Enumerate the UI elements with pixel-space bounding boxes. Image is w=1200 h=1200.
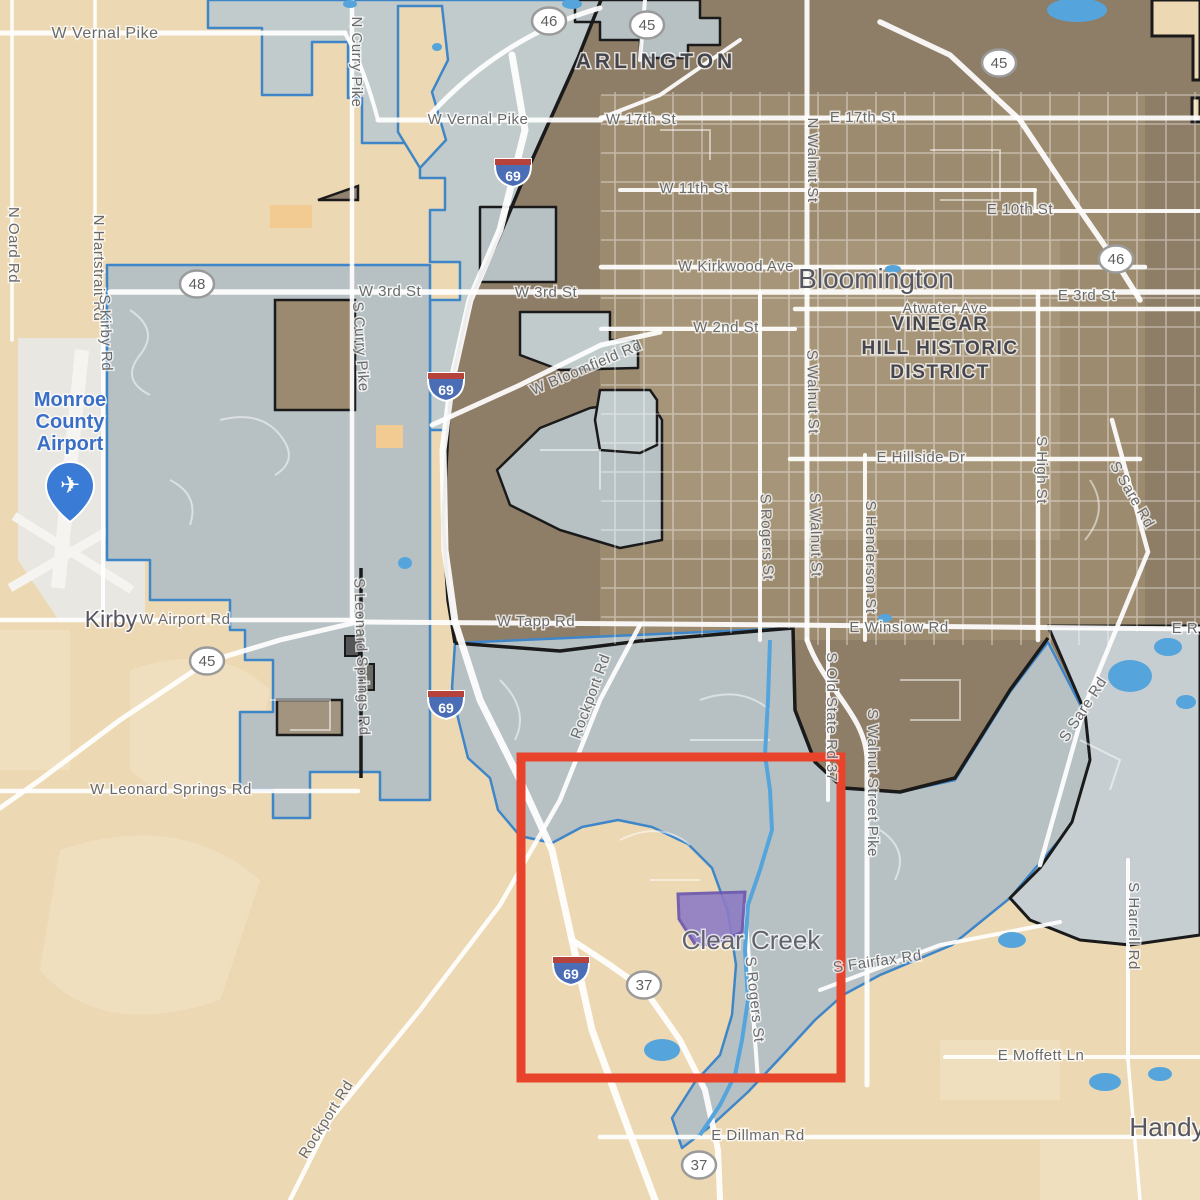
map-canvas[interactable]: W Vernal PikeW Vernal PikeW 17th StE 17t… [0,0,1200,1200]
road-label: W 3rd St [515,284,578,301]
route-shield-48: 48 [180,271,214,298]
airport-poi-label: Airport [37,433,104,455]
place-label: Bloomington [798,263,954,294]
road-label: E 17th St [830,109,897,126]
water-pond [1089,1073,1121,1091]
road-label: N Walnut St [804,118,821,203]
route-shield-45: 45 [190,648,224,675]
interstate-shield-band [495,159,531,165]
route-shield-37: 37 [682,1152,716,1179]
terrain-patch [1040,1140,1200,1200]
road-label: W Vernal Pike [428,111,529,128]
road-label: S Harrell Rd [1125,882,1142,970]
road-label: W 2nd St [693,319,759,336]
airport-poi-label: County [36,411,106,433]
route-shield-number: 45 [991,55,1008,72]
road-label: W 11th St [659,180,729,197]
route-shield-number: 46 [1108,251,1125,268]
route-shield-46: 46 [532,8,566,35]
district-label: HILL HISTORIC [861,338,1018,359]
road-label: W Leonard Springs Rd [90,781,252,798]
place-label: ARLINGTON [576,50,736,73]
district-label: VINEGAR [891,314,988,335]
road-label: S High St [1033,436,1050,504]
road-label: S Walnut Street Pike [864,709,881,857]
road-label: E 3rd St [1058,287,1117,304]
route-shield-46: 46 [1099,246,1133,273]
water-pond [1148,1067,1172,1081]
water-pond [1154,638,1182,656]
place-label: Handy [1129,1112,1200,1142]
route-shield-number: 45 [639,17,656,34]
road-label: N Curry Pike [348,16,365,107]
road-label: S Old State Rd 37 [823,652,840,781]
road-label: E Moffett Ln [998,1047,1085,1064]
road-label: S Walnut St [803,350,821,435]
water-pond [343,0,357,8]
route-shield-number: 45 [199,653,216,670]
road-label: S Rogers St [756,493,776,580]
map-svg[interactable]: W Vernal PikeW Vernal PikeW 17th StE 17t… [0,0,1200,1200]
orange-parcel [376,425,403,448]
road-label: W Kirkwood Ave [678,258,794,275]
water-pond [432,43,442,51]
interstate-shield-band [428,691,464,697]
route-shield-number: 48 [189,276,206,293]
interstate-shield-band [553,957,589,963]
dark-parcel [275,300,355,410]
interstate-shield-band [428,373,464,379]
road-label: W Vernal Pike [52,25,159,42]
interstate-shield-number: 69 [563,966,579,982]
road-label: W 3rd St [359,283,422,300]
road-label: E Winslow Rd [849,619,948,636]
water-pond [644,1039,680,1061]
water-pond [398,557,412,569]
road-label: W 17th St [606,111,677,128]
airplane-icon: ✈ [60,472,80,499]
route-shield-45: 45 [982,50,1016,77]
interstate-shield-number: 69 [438,382,454,398]
place-label: Clear Creek [682,925,822,955]
interstate-shield-number: 69 [505,168,521,184]
road-label: E R [1172,620,1199,637]
district-label: DISTRICT [890,362,990,383]
road-label: S Kirby Rd [96,294,116,371]
road-label: S Walnut St [806,493,824,578]
road-label: E Dillman Rd [711,1127,805,1144]
route-shield-number: 37 [691,1157,708,1174]
road-label: E Hillside Dr [876,449,965,466]
route-shield-45: 45 [630,12,664,39]
interstate-shield-number: 69 [438,700,454,716]
water-pond [1176,695,1196,709]
road-label: N Oard Rd [5,207,22,283]
terrain-patch [0,630,70,770]
road-label: E 10th St [987,201,1054,218]
water-pond [998,932,1026,948]
route-shield-number: 46 [541,13,558,30]
route-shield-37: 37 [627,972,661,999]
water-pond [1108,660,1152,692]
road-label: S Henderson St [862,501,879,614]
road-label: W Tapp Rd [497,613,575,630]
road-label: W Airport Rd [139,611,230,628]
route-shield-number: 37 [636,977,653,994]
airport-poi-label: Monroe [34,389,106,411]
place-label: Kirby [85,606,138,632]
orange-parcel [270,205,312,228]
